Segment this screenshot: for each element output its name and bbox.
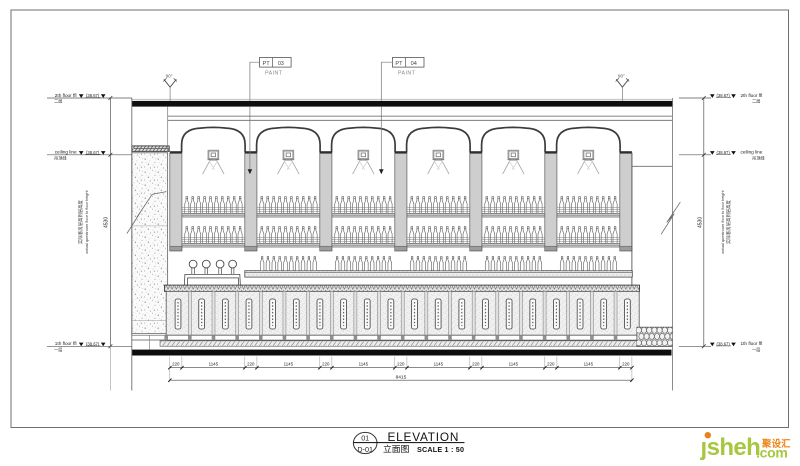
svg-text:220: 220 bbox=[247, 362, 255, 367]
svg-text:2th floor ffl: 2th floor ffl bbox=[741, 93, 763, 98]
svg-text:1145: 1145 bbox=[434, 362, 444, 367]
svg-text:220: 220 bbox=[397, 362, 405, 367]
svg-text:1145: 1145 bbox=[284, 362, 294, 367]
svg-text:220: 220 bbox=[172, 362, 180, 367]
svg-text:1th floor ffl: 1th floor ffl bbox=[741, 341, 763, 346]
svg-text:220: 220 bbox=[622, 362, 630, 367]
svg-text:1th floor ffl: 1th floor ffl bbox=[55, 341, 77, 346]
svg-text:(38.67): (38.67) bbox=[717, 150, 731, 155]
svg-text:ceiling line: ceiling line bbox=[741, 150, 763, 155]
svg-text:SCALE 1 : 50: SCALE 1 : 50 bbox=[417, 445, 464, 454]
svg-text:PT: PT bbox=[263, 61, 271, 67]
svg-text:实际客房层高到层高度: 实际客房层高到层高度 bbox=[77, 199, 84, 244]
svg-text:D-01: D-01 bbox=[357, 445, 373, 454]
svg-text:ELEVATION: ELEVATION bbox=[388, 430, 460, 444]
svg-text:actual questroom floor to floo: actual questroom floor to floor height bbox=[720, 190, 725, 254]
svg-text:(38.67): (38.67) bbox=[86, 93, 100, 98]
svg-text:4530: 4530 bbox=[103, 217, 109, 228]
svg-text:吊顶线: 吊顶线 bbox=[54, 154, 67, 161]
svg-text:(38.67): (38.67) bbox=[717, 93, 731, 98]
svg-text:PAINT: PAINT bbox=[398, 71, 416, 77]
svg-text:1145: 1145 bbox=[359, 362, 369, 367]
svg-text:03: 03 bbox=[278, 61, 284, 67]
svg-text:PT: PT bbox=[395, 61, 403, 67]
svg-text:2th floor ffl: 2th floor ffl bbox=[55, 93, 77, 98]
svg-text:(38.67): (38.67) bbox=[86, 341, 100, 346]
svg-text:ceiling line: ceiling line bbox=[55, 150, 77, 155]
svg-text:实际客房层高到层高度: 实际客房层高到层高度 bbox=[725, 199, 732, 244]
svg-text:(38.67): (38.67) bbox=[717, 341, 731, 346]
svg-text:1145: 1145 bbox=[509, 362, 519, 367]
svg-text:1145: 1145 bbox=[584, 362, 594, 367]
svg-text:聚设汇: 聚设汇 bbox=[761, 438, 791, 449]
svg-text:04: 04 bbox=[411, 61, 417, 67]
svg-text:(38.67): (38.67) bbox=[86, 150, 100, 155]
svg-text:220: 220 bbox=[472, 362, 480, 367]
svg-text:PAINT: PAINT bbox=[265, 71, 283, 77]
svg-text:立面图: 立面图 bbox=[383, 443, 410, 454]
svg-text:8415: 8415 bbox=[396, 374, 407, 380]
svg-text:吊顶线: 吊顶线 bbox=[752, 154, 765, 161]
svg-text:220: 220 bbox=[322, 362, 330, 367]
svg-text:220: 220 bbox=[547, 362, 555, 367]
svg-text:actual questroom floor to floo: actual questroom floor to floor height bbox=[84, 190, 89, 254]
svg-text:4530: 4530 bbox=[697, 217, 703, 228]
svg-text:90°: 90° bbox=[166, 74, 173, 79]
svg-text:90°: 90° bbox=[618, 74, 625, 79]
svg-text:01: 01 bbox=[361, 434, 369, 443]
svg-text:1145: 1145 bbox=[209, 362, 219, 367]
